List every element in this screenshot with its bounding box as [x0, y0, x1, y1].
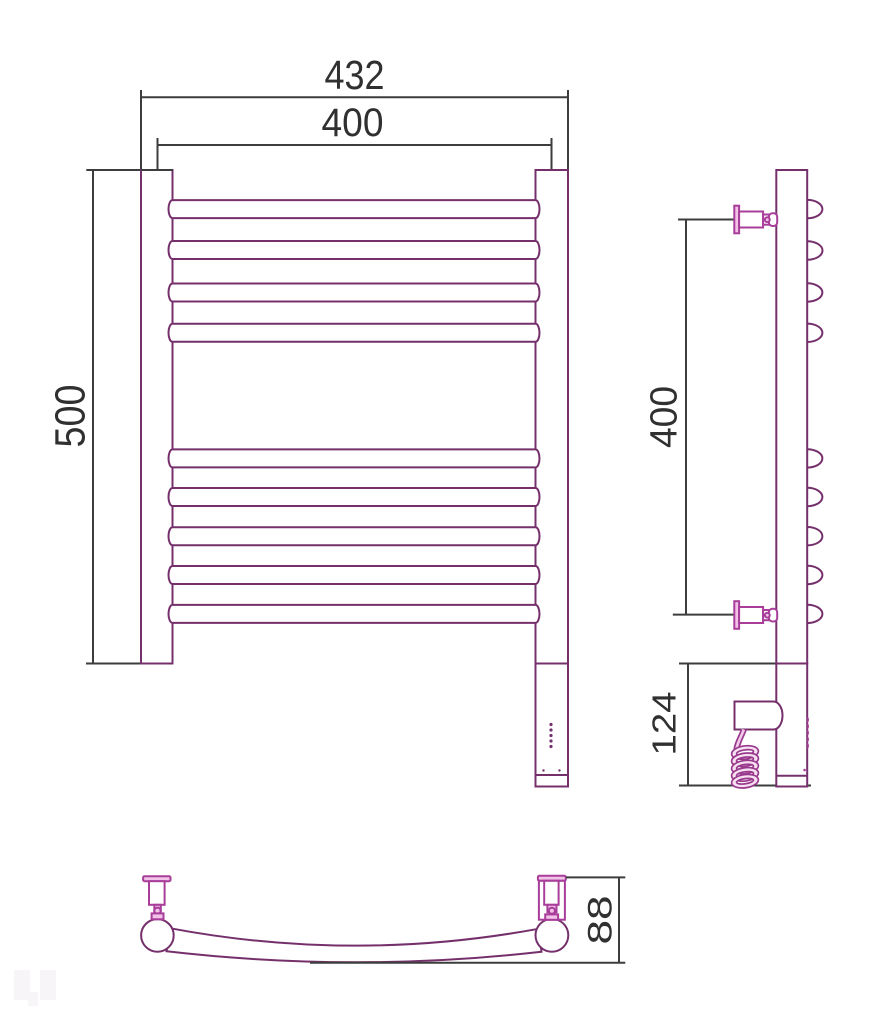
- svg-text:124: 124: [647, 692, 684, 756]
- svg-text:400: 400: [644, 386, 686, 448]
- svg-text:500: 500: [47, 385, 95, 448]
- svg-text:432: 432: [325, 52, 385, 98]
- svg-text:88: 88: [582, 896, 620, 945]
- svg-text:400: 400: [322, 101, 384, 145]
